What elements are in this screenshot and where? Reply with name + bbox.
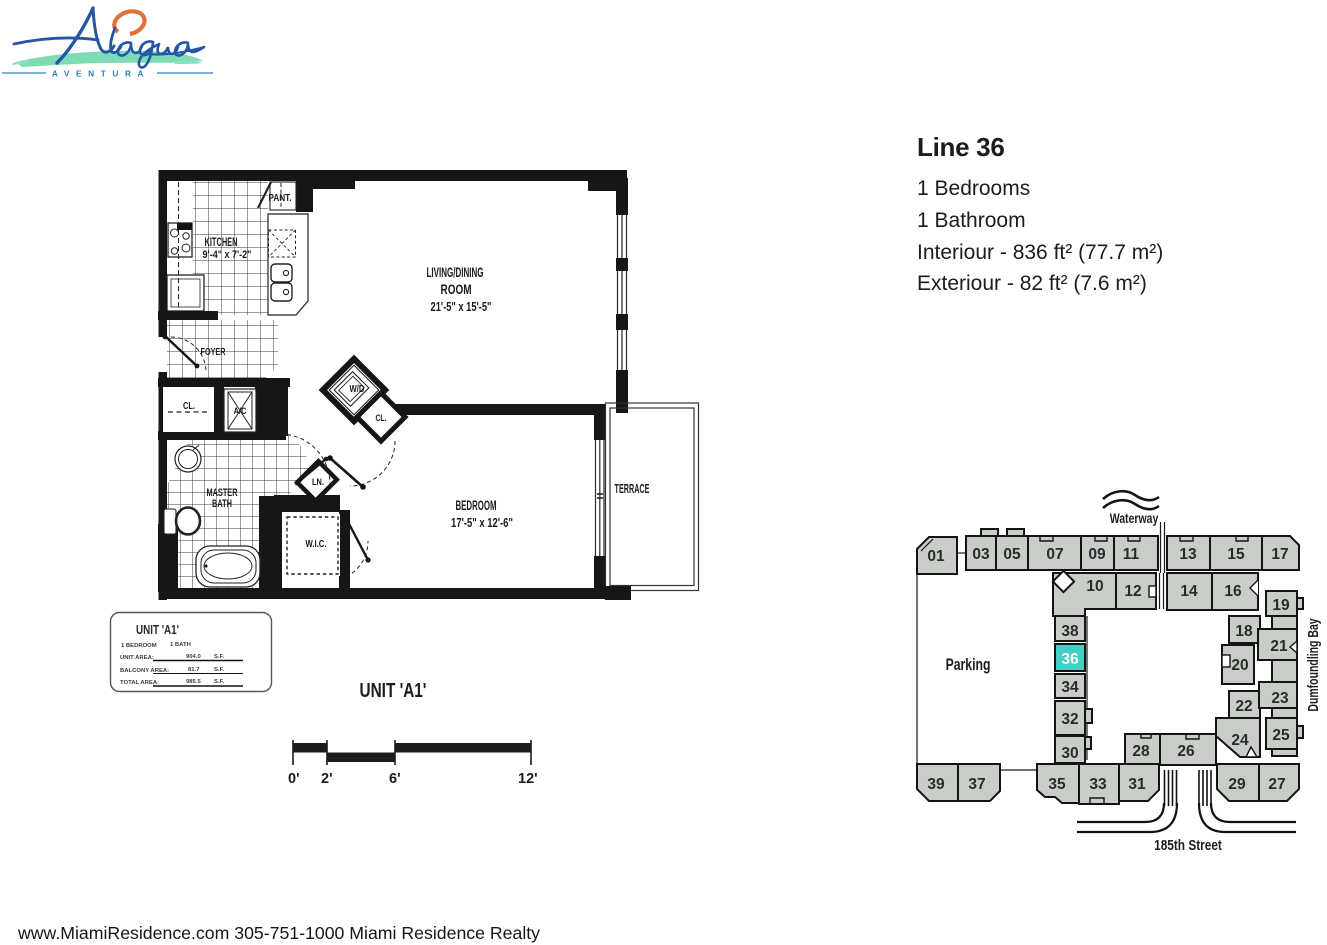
svg-text:2': 2' bbox=[321, 771, 333, 787]
svg-text:10: 10 bbox=[1086, 578, 1103, 595]
svg-text:23: 23 bbox=[1271, 690, 1289, 707]
svg-text:S.F.: S.F. bbox=[214, 667, 225, 673]
svg-text:07: 07 bbox=[1046, 546, 1063, 563]
svg-text:MASTER: MASTER bbox=[207, 487, 238, 499]
svg-text:18: 18 bbox=[1235, 623, 1253, 640]
svg-text:AVENTURA: AVENTURA bbox=[52, 69, 150, 79]
svg-text:W.I.C.: W.I.C. bbox=[306, 538, 327, 549]
svg-text:12': 12' bbox=[518, 771, 538, 787]
svg-text:17'-5" x 12'-6": 17'-5" x 12'-6" bbox=[451, 517, 513, 531]
svg-text:05: 05 bbox=[1003, 546, 1021, 563]
svg-text:09: 09 bbox=[1088, 546, 1106, 563]
svg-text:Dumfoundling Bay: Dumfoundling Bay bbox=[1304, 618, 1321, 712]
svg-text:19: 19 bbox=[1272, 597, 1290, 614]
svg-text:37: 37 bbox=[968, 776, 985, 793]
svg-text:CL.: CL. bbox=[183, 400, 195, 411]
svg-text:03: 03 bbox=[972, 546, 990, 563]
svg-text:22: 22 bbox=[1235, 698, 1252, 715]
svg-text:15: 15 bbox=[1227, 546, 1245, 563]
svg-text:185th Street: 185th Street bbox=[1154, 837, 1222, 854]
svg-text:11: 11 bbox=[1123, 546, 1140, 563]
svg-text:Parking: Parking bbox=[946, 656, 991, 674]
svg-text:30: 30 bbox=[1061, 745, 1078, 762]
svg-text:33: 33 bbox=[1089, 776, 1107, 793]
svg-text:25: 25 bbox=[1272, 727, 1290, 744]
svg-text:Waterway: Waterway bbox=[1110, 511, 1159, 527]
svg-text:29: 29 bbox=[1228, 776, 1246, 793]
svg-text:20: 20 bbox=[1231, 657, 1248, 674]
svg-text:BEDROOM: BEDROOM bbox=[456, 499, 497, 514]
svg-text:1 BATH: 1 BATH bbox=[170, 642, 191, 648]
svg-text:A/C: A/C bbox=[233, 405, 246, 416]
svg-text:CL.: CL. bbox=[375, 413, 386, 423]
svg-text:01: 01 bbox=[927, 548, 945, 565]
svg-text:39: 39 bbox=[927, 776, 945, 793]
svg-text:PANT.: PANT. bbox=[269, 192, 292, 203]
svg-text:UNIT 'A1': UNIT 'A1' bbox=[136, 624, 179, 637]
svg-text:13: 13 bbox=[1179, 546, 1197, 563]
svg-text:38: 38 bbox=[1061, 623, 1079, 640]
svg-text:81.7: 81.7 bbox=[188, 667, 200, 673]
svg-text:LN.: LN. bbox=[312, 476, 324, 487]
svg-text:0': 0' bbox=[288, 771, 300, 787]
svg-text:31: 31 bbox=[1128, 776, 1146, 793]
svg-text:904.0: 904.0 bbox=[186, 654, 201, 660]
svg-text:TERRACE: TERRACE bbox=[615, 483, 650, 496]
svg-text:W/D: W/D bbox=[350, 383, 365, 394]
svg-text:32: 32 bbox=[1061, 711, 1078, 728]
svg-text:S.F.: S.F. bbox=[214, 654, 225, 660]
svg-text:FOYER: FOYER bbox=[201, 346, 226, 358]
svg-text:35: 35 bbox=[1048, 776, 1066, 793]
svg-text:9'-4" x 7'-2": 9'-4" x 7'-2" bbox=[203, 249, 252, 261]
svg-text:12: 12 bbox=[1124, 583, 1141, 600]
svg-text:26: 26 bbox=[1177, 743, 1195, 760]
svg-text:28: 28 bbox=[1132, 743, 1150, 760]
svg-text:UNIT AREA:: UNIT AREA: bbox=[120, 655, 154, 661]
svg-text:ROOM: ROOM bbox=[441, 281, 472, 297]
svg-text:27: 27 bbox=[1268, 776, 1285, 793]
svg-text:36: 36 bbox=[1061, 651, 1079, 668]
svg-text:6': 6' bbox=[389, 771, 401, 787]
svg-text:LIVING/DINING: LIVING/DINING bbox=[427, 266, 484, 281]
svg-text:UNIT 'A1': UNIT 'A1' bbox=[360, 679, 427, 701]
svg-text:TOTAL AREA:: TOTAL AREA: bbox=[120, 680, 159, 686]
svg-text:1 BEDROOM: 1 BEDROOM bbox=[121, 643, 157, 649]
svg-text:34: 34 bbox=[1061, 679, 1079, 696]
svg-text:S.F.: S.F. bbox=[214, 679, 225, 685]
svg-text:985.5: 985.5 bbox=[186, 679, 201, 685]
svg-text:24: 24 bbox=[1231, 732, 1249, 749]
svg-text:16: 16 bbox=[1224, 583, 1242, 600]
svg-text:14: 14 bbox=[1180, 583, 1198, 600]
svg-text:21: 21 bbox=[1270, 638, 1288, 655]
svg-text:21'-5" x 15'-5": 21'-5" x 15'-5" bbox=[431, 301, 492, 315]
svg-text:KITCHEN: KITCHEN bbox=[205, 236, 238, 249]
svg-text:BATH: BATH bbox=[212, 498, 232, 510]
svg-text:17: 17 bbox=[1271, 546, 1288, 563]
